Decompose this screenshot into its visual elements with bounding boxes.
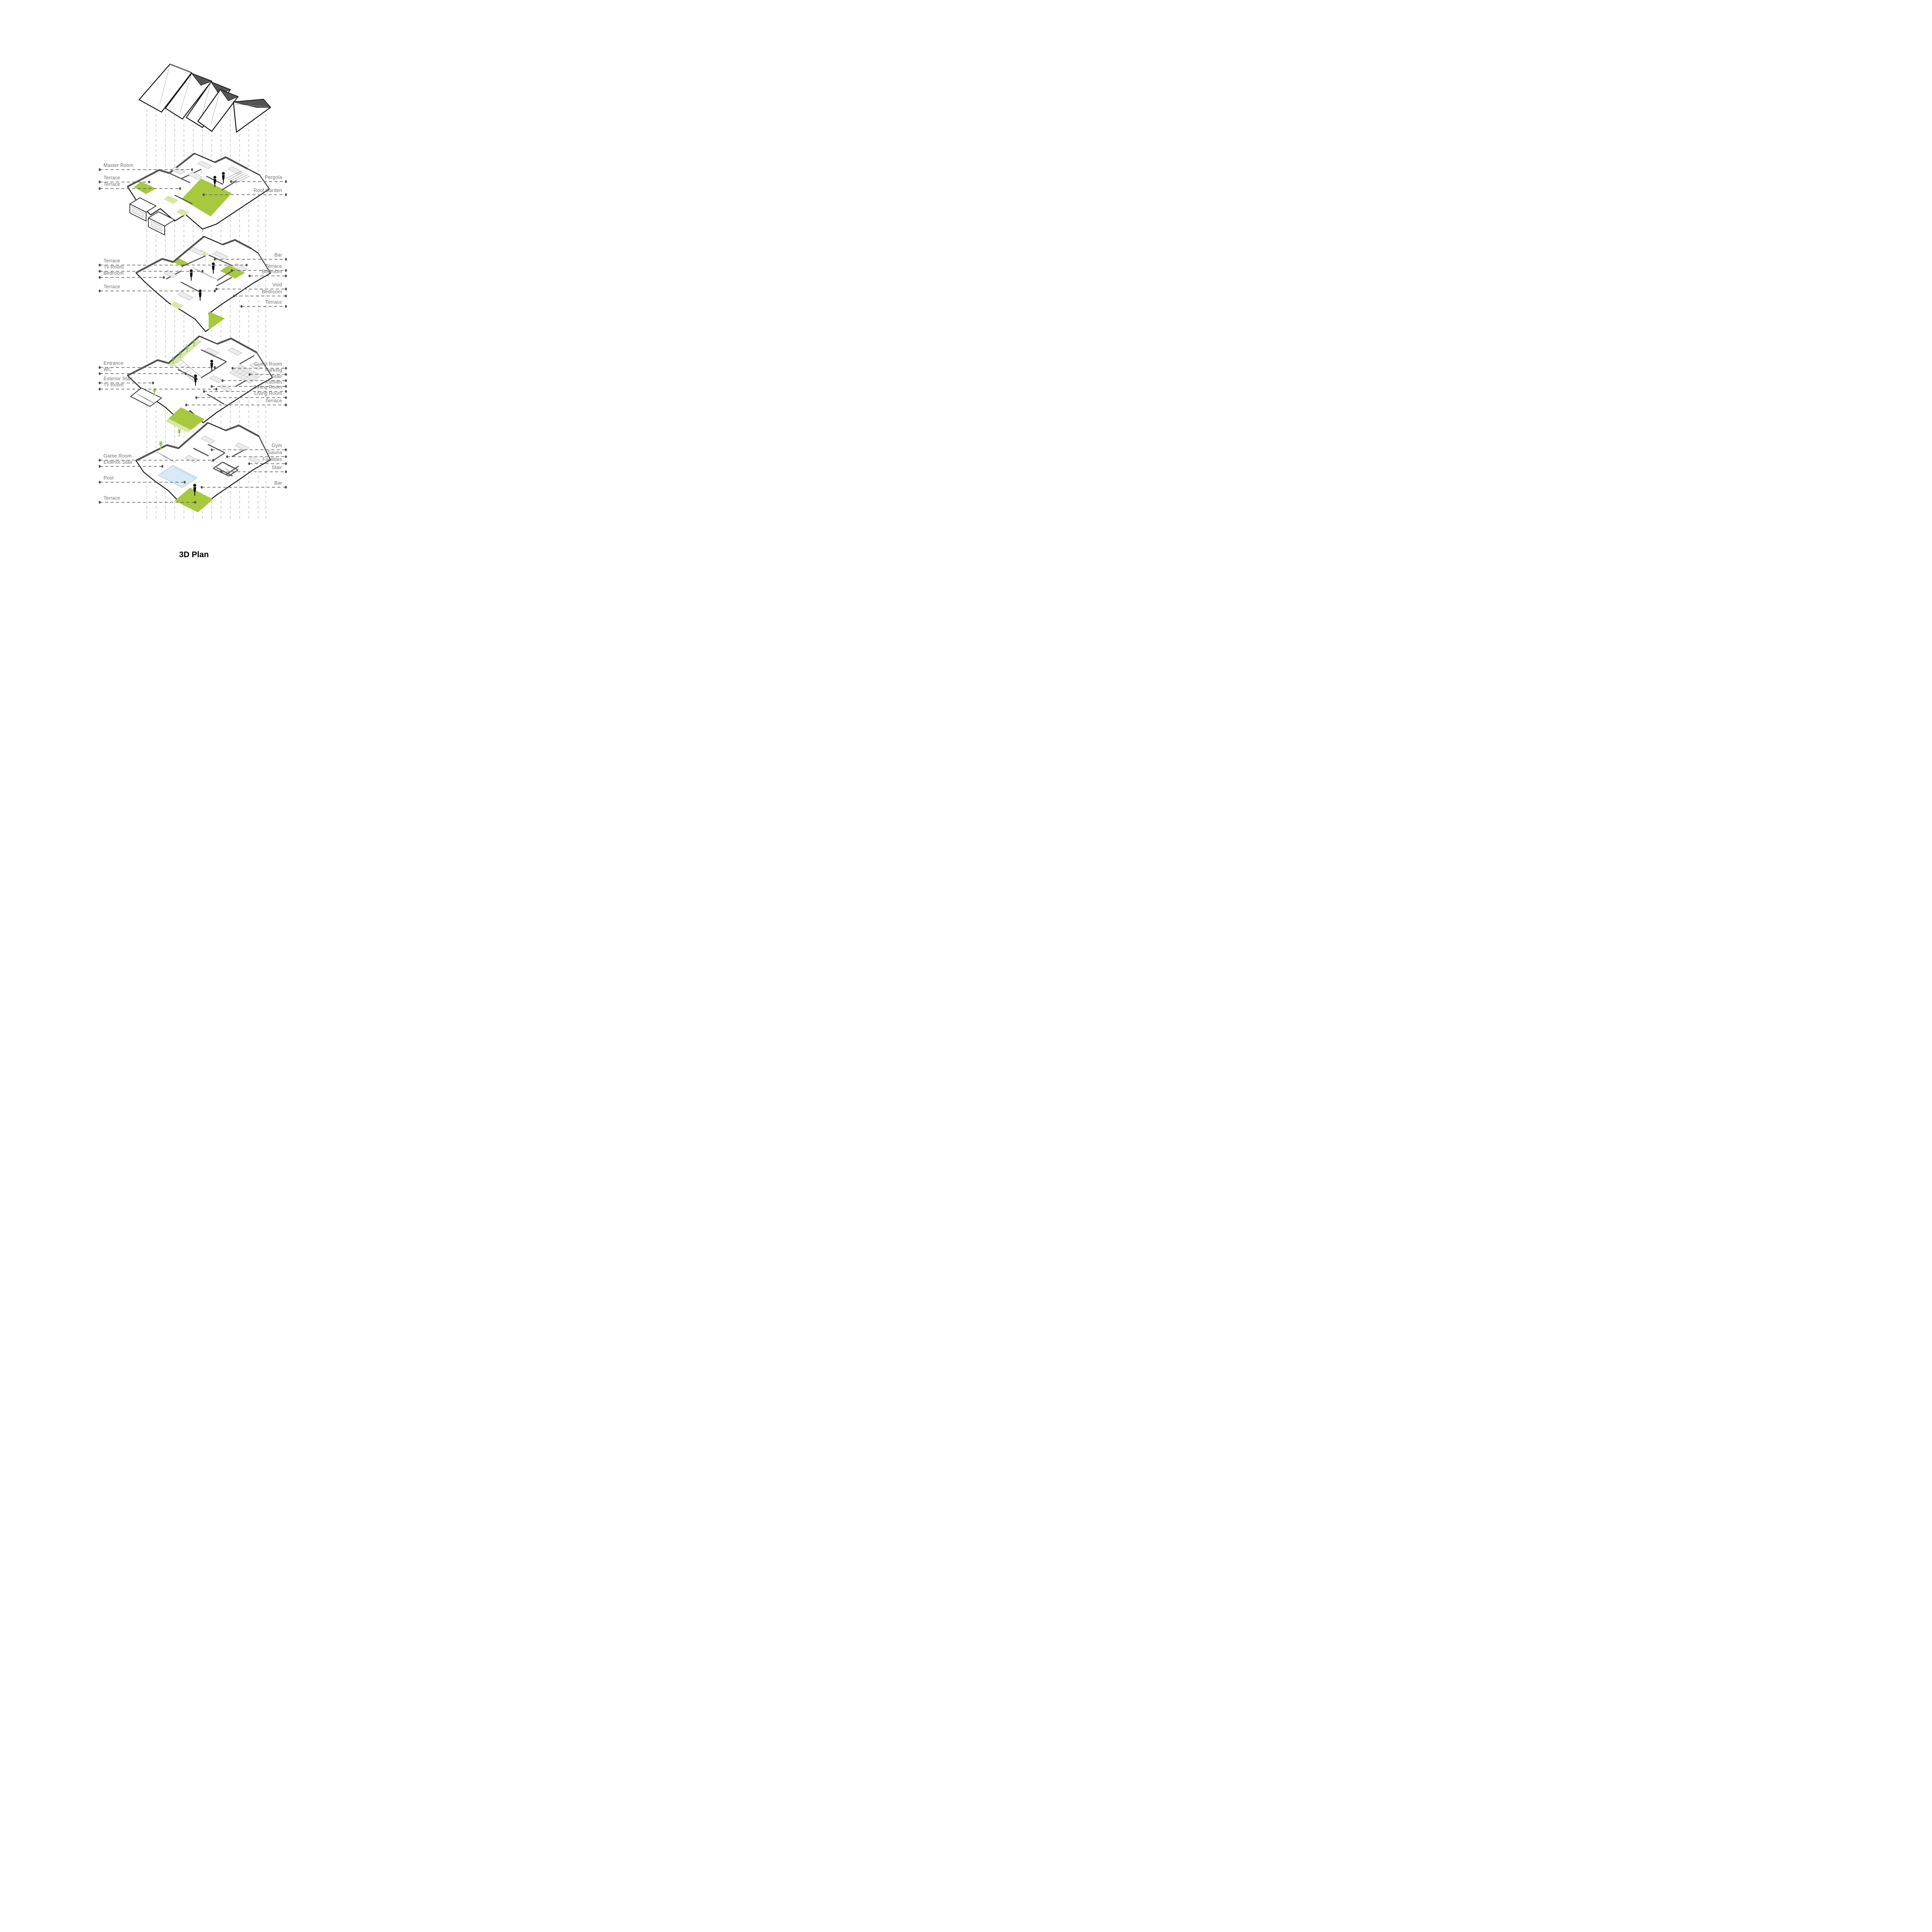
leader-dot bbox=[99, 388, 100, 391]
leader-dot bbox=[285, 269, 287, 272]
leader-dot bbox=[99, 290, 100, 293]
leader-dot bbox=[163, 276, 165, 279]
leader-dot bbox=[179, 187, 181, 190]
floor-label: Stair bbox=[272, 374, 282, 379]
leader-dot bbox=[214, 366, 216, 369]
leader-dot bbox=[99, 465, 100, 468]
leader-dot bbox=[203, 390, 205, 393]
floor-label: Dining Room bbox=[253, 384, 282, 390]
leader-dot bbox=[231, 269, 233, 272]
leader-dot bbox=[245, 264, 247, 267]
leader-dot bbox=[240, 305, 242, 308]
leader-dot bbox=[148, 181, 150, 184]
leader-dot bbox=[99, 181, 100, 184]
floor-label: Stair bbox=[272, 465, 282, 470]
leader-dot bbox=[195, 396, 197, 399]
leader-dot bbox=[285, 373, 287, 376]
leader-dot bbox=[161, 465, 163, 468]
leader-dot bbox=[99, 372, 100, 375]
leader-dot bbox=[99, 276, 100, 279]
leader-dot bbox=[201, 270, 203, 273]
leader-dot bbox=[202, 194, 204, 196]
leader-dot bbox=[99, 270, 100, 273]
leader-dot bbox=[201, 486, 202, 489]
leader-dot bbox=[285, 404, 287, 406]
floor-label: Facilities bbox=[262, 457, 282, 462]
page-title: 3D Plan bbox=[179, 550, 209, 559]
leader-dot bbox=[285, 275, 287, 277]
floor-label: Guest Room bbox=[254, 361, 282, 367]
terrace-area bbox=[209, 311, 225, 330]
leader-dot bbox=[285, 471, 287, 473]
floor-label: Terrace bbox=[265, 398, 282, 403]
floor-label: Parking bbox=[265, 367, 282, 373]
leader-dot bbox=[285, 305, 287, 308]
leader-dot bbox=[285, 180, 287, 183]
floor-label: Terrace bbox=[104, 182, 120, 187]
leader-dot bbox=[248, 373, 250, 376]
floor-label: Game Room bbox=[104, 453, 132, 459]
leader-dot bbox=[230, 180, 232, 183]
floor-label: WC bbox=[104, 367, 112, 372]
floor-label: Kitchen bbox=[265, 379, 282, 385]
leader-dot bbox=[285, 449, 287, 451]
floor-label: Entrance bbox=[104, 361, 124, 366]
leader-dot bbox=[248, 275, 250, 277]
leader-dot bbox=[184, 481, 185, 484]
leader-dot bbox=[226, 456, 228, 458]
floor-label: Gym bbox=[272, 443, 282, 448]
floor-label: Master Room bbox=[104, 163, 133, 168]
leader-dot bbox=[285, 390, 287, 393]
leader-dot bbox=[211, 449, 213, 451]
floor-label: Tv Room bbox=[104, 382, 124, 388]
leader-dot bbox=[212, 459, 214, 462]
leader-dot bbox=[99, 459, 100, 462]
floor-label: Void bbox=[272, 282, 282, 287]
leader-dot bbox=[185, 404, 187, 406]
leader-dot bbox=[231, 367, 233, 370]
master-floor-drawing bbox=[128, 153, 269, 235]
leader-dot bbox=[194, 501, 196, 504]
roof-plates-drawing bbox=[139, 64, 270, 132]
leader-dot bbox=[233, 295, 235, 298]
leader-dot bbox=[99, 382, 100, 384]
leader-dot bbox=[285, 385, 287, 388]
floor-label: Pergola bbox=[265, 175, 282, 180]
floor-label: Pool bbox=[104, 475, 114, 481]
leader-dot bbox=[285, 456, 287, 458]
floor-label: Bedroom bbox=[262, 289, 282, 294]
floor-label: Terrace bbox=[104, 175, 120, 180]
leader-dot bbox=[215, 288, 217, 291]
floor-label: Tv Room bbox=[104, 264, 124, 270]
floor-label: Bedroom bbox=[104, 270, 124, 276]
floor-label: Terrace bbox=[104, 495, 120, 501]
leader-dot bbox=[220, 471, 222, 473]
leader-dot bbox=[191, 168, 193, 171]
leader-dot bbox=[285, 379, 287, 382]
floor-label: Bar bbox=[274, 252, 282, 258]
leader-dot bbox=[99, 168, 100, 171]
leader-dot bbox=[285, 258, 287, 261]
leader-dot bbox=[285, 486, 287, 489]
leader-dot bbox=[285, 288, 287, 291]
leader-dot bbox=[214, 290, 216, 293]
leader-dot bbox=[285, 295, 287, 298]
floor-label: Living Room bbox=[254, 391, 282, 396]
leader-dot bbox=[285, 367, 287, 370]
leader-dot bbox=[211, 385, 213, 388]
leader-dot bbox=[285, 396, 287, 399]
leader-dot bbox=[285, 194, 287, 196]
floor-label: Terrace bbox=[265, 264, 282, 269]
floor-label: Exterior Stair bbox=[104, 459, 133, 465]
leader-dot bbox=[152, 382, 154, 384]
leader-dot bbox=[99, 501, 100, 504]
floor-label: Terrace bbox=[104, 284, 120, 289]
leader-dot bbox=[184, 372, 186, 375]
leader-dot bbox=[214, 258, 216, 261]
leader-dot bbox=[221, 379, 223, 382]
leader-dot bbox=[99, 264, 100, 267]
floor-label: Terrace bbox=[265, 299, 282, 305]
floor-label: Exterior Stair bbox=[104, 376, 133, 381]
plant-icon bbox=[177, 429, 181, 437]
leader-dot bbox=[248, 463, 250, 465]
leader-dot bbox=[99, 366, 100, 369]
leader-dot bbox=[215, 388, 217, 391]
main-floor-drawing bbox=[128, 336, 272, 433]
leader-dot bbox=[99, 187, 100, 190]
leader-dot bbox=[285, 463, 287, 465]
floor-label: Sauna bbox=[268, 450, 282, 455]
floor-label: Bar bbox=[274, 480, 282, 486]
exploded-3d-plan-diagram: Master RoomTerraceTerracePergolaRoof Gar… bbox=[0, 0, 386, 580]
floor-label: Bedroom bbox=[262, 269, 282, 274]
floor-label: Roof Garden bbox=[253, 188, 282, 193]
floor-label: Terrace bbox=[104, 258, 120, 264]
leader-dot bbox=[99, 481, 100, 484]
